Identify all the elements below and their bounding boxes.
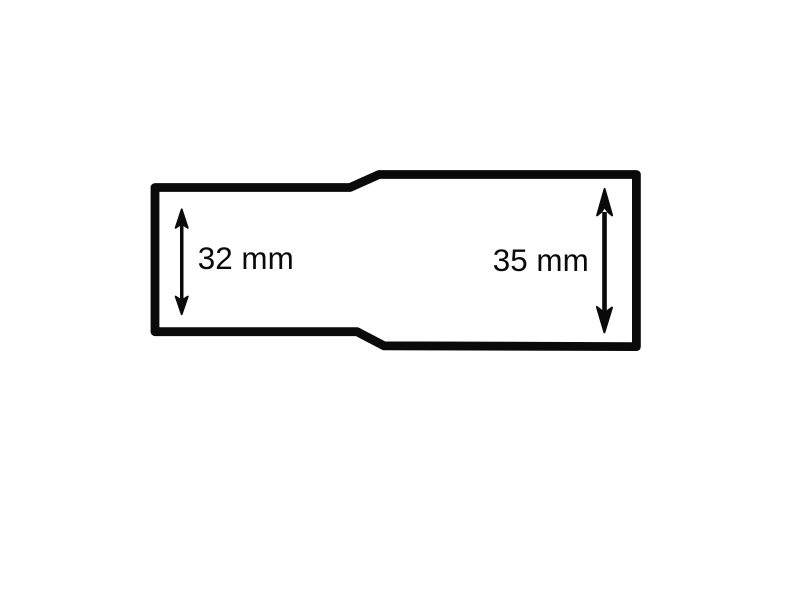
svg-text:32 mm: 32 mm	[198, 241, 294, 276]
svg-text:35 mm: 35 mm	[493, 243, 589, 278]
